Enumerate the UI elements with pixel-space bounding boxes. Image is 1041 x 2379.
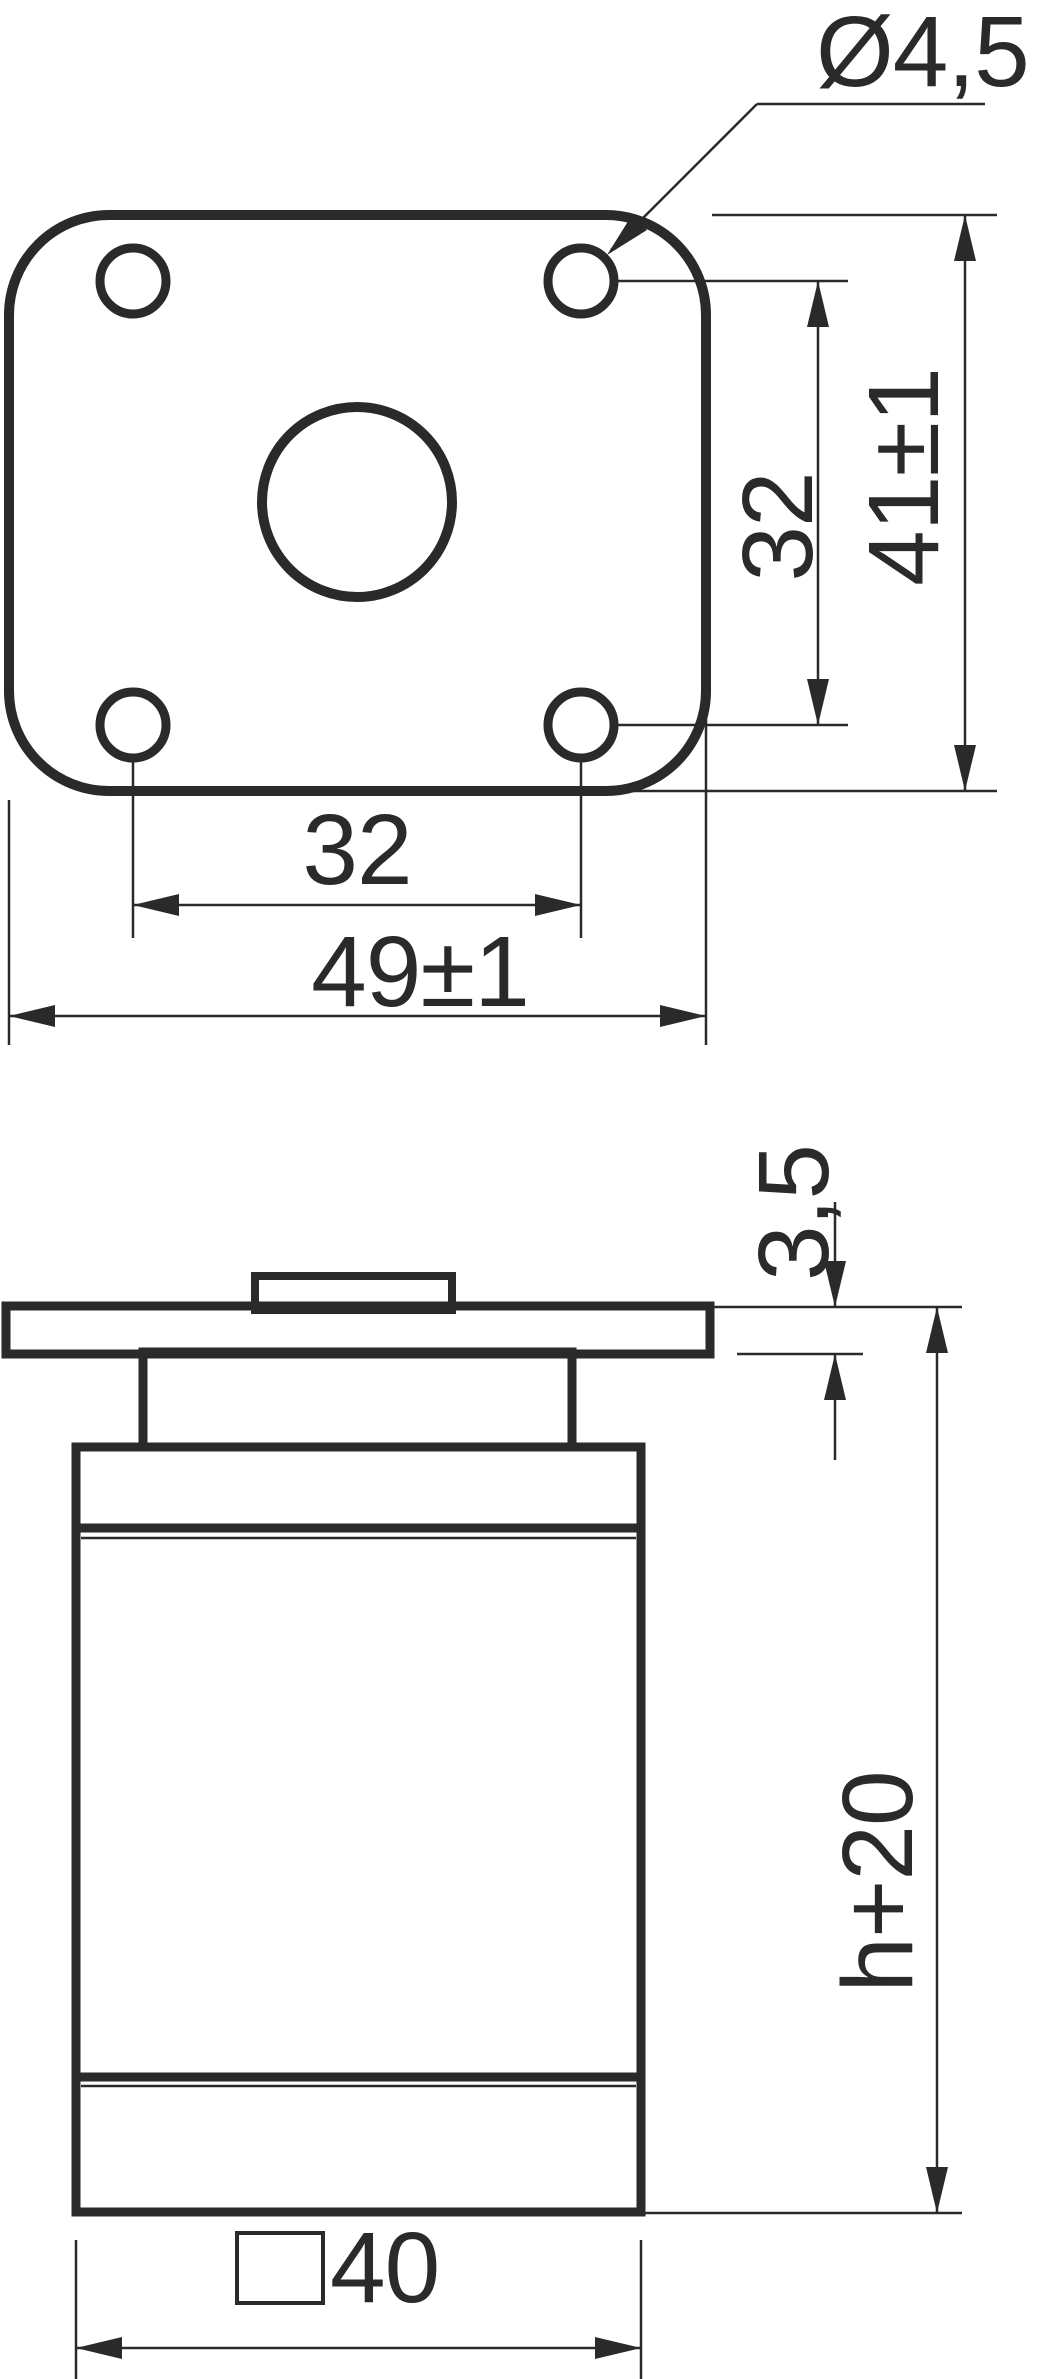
dim-arrow-right-icon	[535, 894, 581, 916]
screw-hole-top-left	[100, 248, 166, 314]
dim-arrow-up-icon	[926, 1307, 948, 1353]
hole-diameter-label: Ø4,5	[816, 0, 1029, 108]
dim-arrow-left-icon	[133, 894, 179, 916]
neck-outline	[143, 1352, 572, 1447]
dim-arrow-up-icon	[954, 215, 976, 261]
upper-joint-lines	[76, 1528, 641, 1538]
center-hole	[262, 407, 452, 597]
dim-hole-spacing-vertical: 32	[618, 281, 848, 725]
screw-hole-bottom-right	[548, 692, 614, 758]
dim-leg-height: h+20	[645, 1307, 962, 2213]
top-view: Ø4,5 32 41±1 32	[9, 0, 1029, 1045]
lower-joint-lines	[76, 2077, 641, 2086]
hole-spacing-vertical-label: 32	[722, 472, 834, 581]
plate-thickness-label: 3,5	[738, 1145, 850, 1281]
screw-hole-top-right	[548, 248, 614, 314]
dim-arrow-down-icon	[954, 745, 976, 791]
square-section-symbol-icon	[237, 2233, 323, 2303]
technical-drawing: Ø4,5 32 41±1 32	[0, 0, 1041, 2379]
dim-arrow-down-icon	[926, 2167, 948, 2213]
dim-arrow-right-icon	[595, 2337, 641, 2359]
screw-hole-bottom-left	[100, 692, 166, 758]
tube-size-label: 40	[330, 2212, 439, 2324]
dim-arrow-left-icon	[9, 1005, 55, 1027]
side-view: 3,5 h+20 40	[6, 1145, 962, 2379]
dim-tube-size: 40	[76, 2212, 641, 2379]
dim-arrow-down-icon	[807, 679, 829, 725]
leg-height-label: h+20	[822, 1771, 934, 1992]
plate-width-label: 49±1	[311, 916, 529, 1028]
dim-arrow-right-icon	[660, 1005, 706, 1027]
plate-height-label: 41±1	[848, 368, 960, 586]
dim-arrow-up-icon	[824, 1354, 846, 1400]
dim-plate-thickness: 3,5	[714, 1145, 962, 1460]
dim-arrow-up-icon	[807, 281, 829, 327]
dim-arrow-left-icon	[76, 2337, 122, 2359]
leg-body-outline	[76, 1447, 641, 2212]
hole-spacing-horizontal-label: 32	[302, 794, 411, 906]
